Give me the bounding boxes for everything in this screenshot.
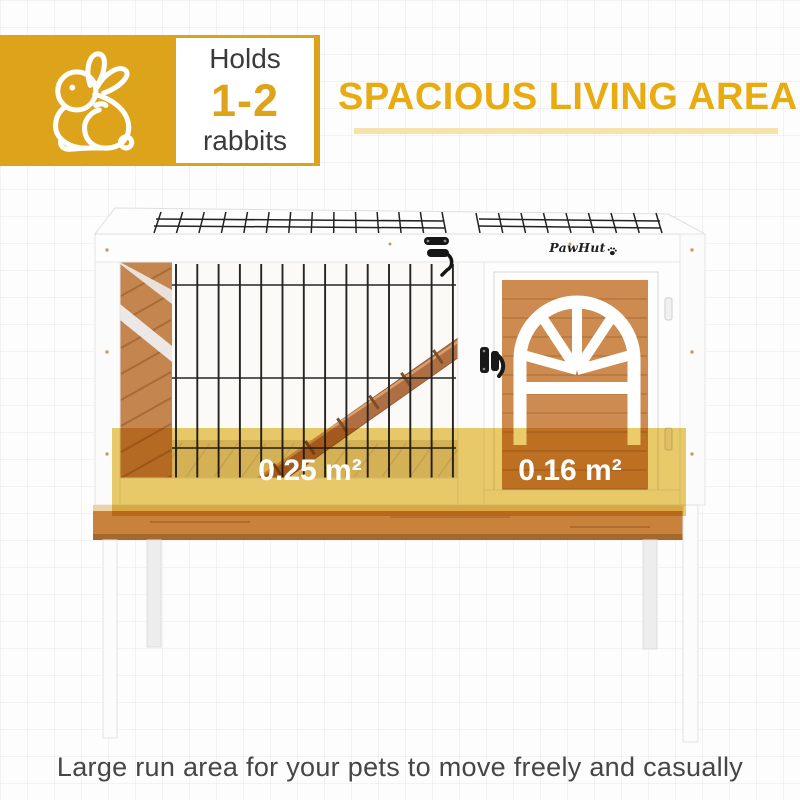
holds-label: Holds [209,44,281,75]
headline-underline [354,128,778,134]
capacity-count: 1-2 [211,75,279,127]
hutch-photo: 0.25 m² 0.16 m² PawHut [90,200,710,745]
rabbit-icon [0,35,176,166]
brand-logo: PawHut [518,240,638,255]
door-hinge-top [665,298,672,320]
rabbits-label: rabbits [203,126,287,157]
capacity-badge: Holds 1-2 rabbits [0,35,320,166]
caption: Large run area for your pets to move fre… [0,752,800,783]
brand-name: PawHut [549,240,605,255]
capacity-text-box: Holds 1-2 rabbits [176,38,314,163]
headline: SPACIOUS LIVING AREA [338,76,794,119]
headline-block: SPACIOUS LIVING AREA [338,76,794,134]
run-area-value: 0.25 m² [225,454,395,488]
product-feature-image: Holds 1-2 rabbits SPACIOUS LIVING AREA [0,0,800,800]
hutch-area-value: 0.16 m² [495,454,645,800]
